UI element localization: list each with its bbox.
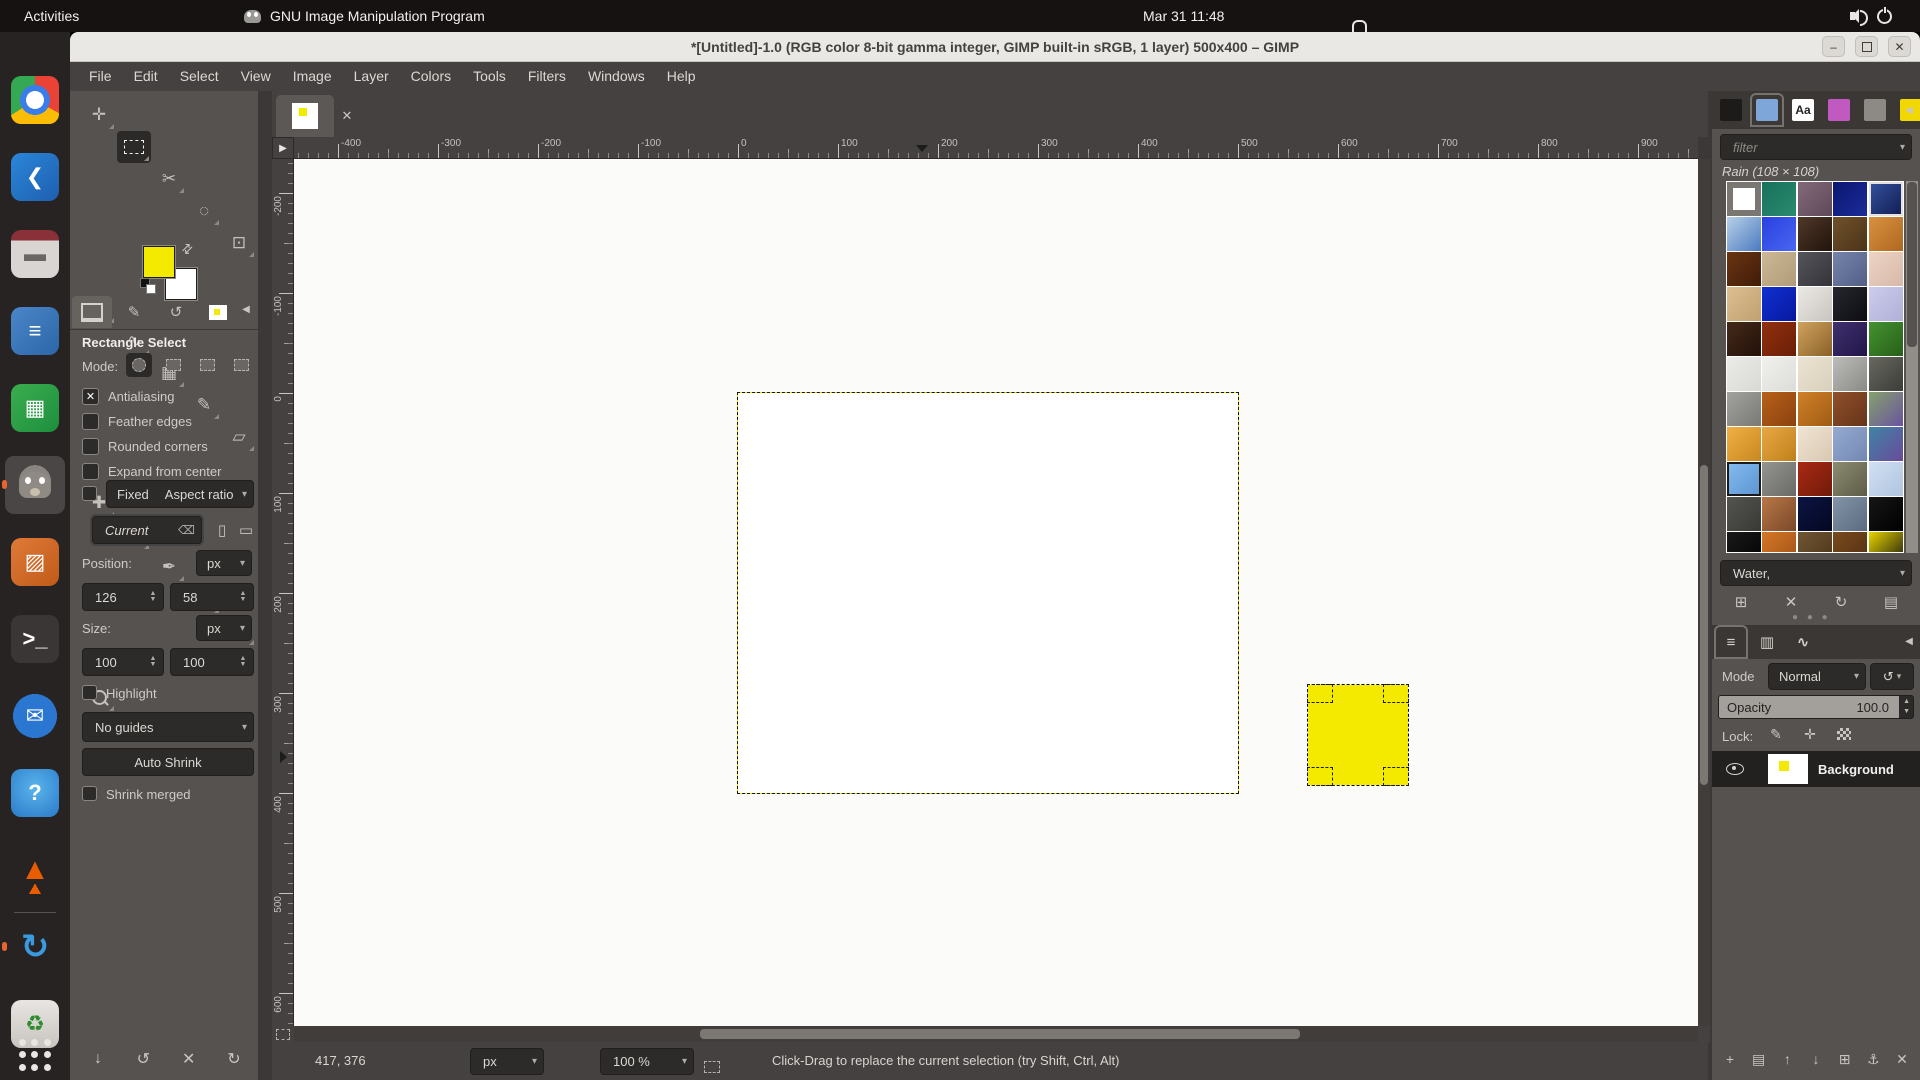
vertical-scrollbar-thumb[interactable]: [1700, 465, 1708, 785]
vertical-ruler[interactable]: -200-1000100200300400500600: [272, 159, 294, 1026]
toolbox-tab-tool-options[interactable]: [72, 296, 112, 328]
dock-item-terminal[interactable]: >_: [11, 615, 59, 663]
fixed-size-input[interactable]: Current ⌫: [92, 516, 202, 544]
window-controls: –✕: [1822, 32, 1920, 62]
delete-tool-preset-button[interactable]: ✕: [177, 1048, 201, 1070]
lower-layer-button[interactable]: ↓: [1804, 1048, 1828, 1070]
navigation-preview-button[interactable]: [1698, 1026, 1710, 1042]
option-row-feather-edges: Feather edges: [82, 410, 252, 432]
selection-handle-ne[interactable]: [1383, 684, 1409, 703]
ruler-corner-menu-icon[interactable]: ▶: [272, 137, 294, 159]
default-colors-icon-bg: [146, 284, 156, 294]
dock-item-chrome[interactable]: [11, 76, 59, 124]
layers-tab-layers[interactable]: ≡: [1716, 627, 1746, 657]
pointer-position: 417, 376: [315, 1053, 366, 1068]
restore-tool-preset-button[interactable]: ↺: [131, 1048, 155, 1070]
refresh-patterns-button[interactable]: ↻: [1828, 591, 1854, 613]
pattern-swatch[interactable]: [1762, 392, 1796, 426]
pattern-swatch[interactable]: [1869, 217, 1903, 251]
ruler-tick: [279, 693, 293, 694]
fixed-dropdown[interactable]: Fixed Aspect ratio ▾: [106, 480, 254, 508]
highlight-checkbox[interactable]: [82, 685, 97, 700]
menu-file[interactable]: File: [78, 62, 123, 91]
guides-dropdown[interactable]: No guides▾: [82, 712, 254, 742]
pattern-swatch[interactable]: [1833, 322, 1867, 356]
lock-alpha-button[interactable]: [1832, 723, 1856, 745]
ruler-tick: [338, 144, 339, 158]
gimp-toolbox-panel: ✛✂◌⊡↻∿▦✎▱✚◗✒A⌖ ⇄ ✎↺ ◀ Rectangle Select M…: [70, 91, 258, 1080]
dock-item-files[interactable]: ▬: [11, 230, 59, 278]
ruler-tick-label: -200: [273, 196, 284, 216]
ruler-tick-label: 800: [1541, 138, 1558, 149]
selected-pattern-label: Rain (108 × 108): [1722, 164, 1819, 179]
menu-view[interactable]: View: [230, 62, 282, 91]
pattern-swatch[interactable]: [1869, 462, 1903, 496]
ruler-tick-label: 200: [941, 138, 958, 149]
pattern-tag-dropdown[interactable]: Water,▾: [1720, 560, 1912, 586]
ruler-tick: [1538, 144, 1539, 158]
status-message: Click-Drag to replace the current select…: [772, 1053, 1120, 1068]
right-dock: Aa ◀ filter▾ Rain (108 × 108) Water,▾ ⊞✕…: [1712, 91, 1920, 1080]
ruler-tick-label: 400: [1141, 138, 1158, 149]
close-image-tab-icon[interactable]: ✕: [336, 105, 358, 127]
shrink-merged-label: Shrink merged: [106, 787, 191, 802]
pattern-swatch[interactable]: [1869, 497, 1903, 531]
window-title: *[Untitled]-1.0 (RGB color 8-bit gamma i…: [70, 32, 1920, 62]
pattern-swatch[interactable]: [1727, 252, 1761, 286]
gimp-menubar: FileEditSelectViewImageLayerColorsToolsF…: [70, 62, 1920, 91]
pattern-swatch[interactable]: [1833, 427, 1867, 461]
selection-handle-se[interactable]: [1383, 767, 1409, 786]
ruler-tick: [1438, 144, 1439, 158]
pattern-swatch[interactable]: [1798, 322, 1832, 356]
ruler-tick-label: 500: [1241, 138, 1258, 149]
dock-tab-brushes[interactable]: [1716, 95, 1746, 125]
ruler-tick: [838, 144, 839, 158]
ruler-tick: [438, 144, 439, 158]
save-tool-preset-button[interactable]: ↓: [86, 1048, 110, 1070]
ruler-tick: [1138, 144, 1139, 158]
running-indicator: [2, 942, 7, 951]
pattern-swatch[interactable]: [1727, 182, 1761, 216]
new-layer-group-button[interactable]: ▤: [1747, 1048, 1771, 1070]
new-layer-button[interactable]: +: [1718, 1048, 1742, 1070]
ruler-tick-label: -200: [541, 138, 561, 149]
ruler-tick-label: 100: [273, 496, 284, 513]
mode-label: Mode:: [82, 359, 118, 374]
pattern-swatch[interactable]: [1727, 462, 1761, 496]
vertical-scrollbar[interactable]: [1698, 159, 1710, 1026]
ruler-tick-label: -100: [273, 296, 284, 316]
pattern-swatch[interactable]: [1869, 357, 1903, 391]
pattern-swatch[interactable]: [1798, 427, 1832, 461]
pattern-swatch[interactable]: [1762, 532, 1796, 553]
highlight-label: Highlight: [106, 686, 157, 701]
tool-crop[interactable]: ⊡: [222, 227, 256, 259]
system-status-area[interactable]: [1850, 0, 1892, 32]
pattern-swatch[interactable]: [1869, 532, 1903, 553]
ruler-tick-label: 500: [273, 896, 284, 913]
opacity-spinner-icons[interactable]: ▲▼: [1903, 697, 1910, 717]
lock-pixels-button[interactable]: ✎: [1764, 723, 1788, 745]
pattern-filter-input[interactable]: filter▾: [1720, 134, 1912, 160]
layer-mode-reset-button[interactable]: ↺▾: [1870, 663, 1914, 690]
lock-label: Lock:: [1722, 729, 1753, 744]
landscape-orientation-icon[interactable]: ▭: [236, 520, 256, 540]
chevron-down-icon: ▾: [242, 489, 253, 500]
shrink-merged-checkbox[interactable]: [82, 786, 97, 801]
rounded-corners-label: Rounded corners: [108, 439, 208, 454]
dock-item-thunderbird[interactable]: ✉: [11, 692, 59, 740]
tool-move[interactable]: ✛: [82, 99, 116, 131]
ruler-tick-label: 600: [1341, 138, 1358, 149]
pattern-swatch[interactable]: [1798, 497, 1832, 531]
layers-collapse-icon[interactable]: ◀: [1902, 632, 1916, 650]
ruler-tick-label: 100: [841, 138, 858, 149]
pattern-swatch[interactable]: [1798, 182, 1832, 216]
ruler-tick: [279, 493, 293, 494]
position-x-spinner[interactable]: 126▲▼: [82, 583, 164, 611]
tool-options-title: Rectangle Select: [82, 335, 186, 350]
show-applications-button[interactable]: [14, 1034, 56, 1076]
volume-icon: [1850, 12, 1855, 20]
dock-tab-palettes[interactable]: [1860, 95, 1890, 125]
ruler-tick: [938, 144, 939, 158]
expand-from-center-checkbox[interactable]: [82, 463, 99, 480]
pattern-swatch[interactable]: [1762, 322, 1796, 356]
pattern-swatch[interactable]: [1798, 252, 1832, 286]
dock-item-libreoffice-calc[interactable]: ▦: [11, 384, 59, 432]
pattern-swatch[interactable]: [1762, 497, 1796, 531]
opacity-value: 100.0: [1856, 700, 1889, 715]
auto-shrink-button[interactable]: Auto Shrink: [82, 748, 254, 776]
ruler-tick-label: -400: [341, 138, 361, 149]
clock[interactable]: Mar 31 11:48: [1143, 0, 1224, 32]
pattern-swatch[interactable]: [1869, 182, 1903, 216]
statusbar: 417, 376 px▾ 100 %▾ Click-Drag to replac…: [272, 1042, 1708, 1080]
ruler-tick: [279, 993, 293, 994]
pattern-swatch[interactable]: [1727, 322, 1761, 356]
ruler-tick: [279, 393, 293, 394]
size-height-spinner[interactable]: 100▲▼: [170, 648, 254, 676]
pattern-swatch[interactable]: [1833, 287, 1867, 321]
dock-item-libreoffice-impress[interactable]: ▨: [11, 538, 59, 586]
pattern-swatch[interactable]: [1833, 392, 1867, 426]
option-row-antialiasing: ✕Antialiasing: [82, 385, 252, 407]
dock-collapse-icon[interactable]: ◀: [1902, 101, 1916, 119]
maximize-button[interactable]: [1855, 36, 1878, 57]
lock-position-button[interactable]: ✛: [1798, 723, 1822, 745]
ubuntu-dock: ❮▬≡▦▨>_✉?▲↻♻: [0, 32, 70, 1080]
ruler-tick-label: 600: [273, 996, 284, 1013]
opacity-label: Opacity: [1727, 700, 1771, 715]
image-canvas[interactable]: [738, 393, 1238, 793]
ruler-tick: [1038, 144, 1039, 158]
pattern-swatch[interactable]: [1727, 497, 1761, 531]
size-label: Size:: [82, 621, 111, 636]
expand-from-center-label: Expand from center: [108, 464, 221, 479]
foreground-color-swatch[interactable]: [143, 246, 175, 278]
layer-mode-dropdown[interactable]: Normal▾: [1768, 663, 1866, 690]
open-pattern-as-image-button[interactable]: ▤: [1878, 591, 1904, 613]
raise-layer-button[interactable]: ↑: [1775, 1048, 1799, 1070]
dock-item-software-updater[interactable]: ↻: [11, 923, 59, 971]
fixed-checkbox[interactable]: [82, 486, 97, 501]
pattern-swatch[interactable]: [1727, 217, 1761, 251]
dock-separator: [14, 912, 56, 913]
activities-button[interactable]: Activities: [24, 0, 79, 32]
select-mode-subtract[interactable]: [194, 353, 220, 377]
pattern-swatch[interactable]: [1869, 392, 1903, 426]
power-icon: [1877, 9, 1892, 24]
pattern-swatch[interactable]: [1762, 217, 1796, 251]
dock-item-gimp[interactable]: [11, 461, 59, 509]
ruler-tick: [279, 893, 293, 894]
pattern-swatch[interactable]: [1833, 532, 1867, 553]
ruler-tick-label: 300: [273, 696, 284, 713]
tool-rectangle-select[interactable]: [117, 131, 151, 163]
layer-visibility-icon[interactable]: [1726, 763, 1744, 775]
ruler-tick-label: 700: [1441, 138, 1458, 149]
canvas-viewport[interactable]: [294, 159, 1698, 1026]
ruler-tick-label: 0: [273, 396, 284, 402]
pointer-position-marker-v: [280, 751, 293, 763]
ruler-tick-label: 300: [1041, 138, 1058, 149]
selection-handle-nw[interactable]: [1307, 684, 1333, 703]
option-row-rounded-corners: Rounded corners: [82, 435, 252, 457]
patterns-grid[interactable]: [1726, 181, 1904, 553]
horizontal-ruler[interactable]: -400-300-200-100010020030040050060070080…: [294, 137, 1698, 159]
patterns-scrollbar[interactable]: [1906, 181, 1918, 553]
gnome-top-bar: Activities GNU Image Manipulation Progra…: [0, 0, 1920, 32]
anchor-layer-button[interactable]: ⚓: [1861, 1048, 1885, 1070]
ruler-tick-label: 200: [273, 596, 284, 613]
active-tool-status-icon: [704, 1061, 720, 1073]
quick-mask-toggle[interactable]: [272, 1026, 294, 1042]
delete-layer-button[interactable]: ✕: [1890, 1048, 1914, 1070]
opacity-slider[interactable]: Opacity 100.0 ▲▼: [1718, 695, 1914, 719]
ruler-tick: [279, 293, 293, 294]
dock-item-vscode[interactable]: ❮: [11, 153, 59, 201]
pattern-swatch[interactable]: [1798, 532, 1832, 553]
option-row-expand-from-center: Expand from center: [82, 460, 252, 482]
menu-filters[interactable]: Filters: [517, 62, 577, 91]
pattern-swatch[interactable]: [1762, 252, 1796, 286]
ruler-tick: [638, 144, 639, 158]
pattern-swatch[interactable]: [1833, 462, 1867, 496]
close-button[interactable]: ✕: [1888, 36, 1911, 57]
ruler-tick-label: 400: [273, 796, 284, 813]
layer-mode-label: Mode: [1722, 669, 1755, 684]
ruler-tick: [1338, 144, 1339, 158]
dock-item-help[interactable]: ?: [11, 769, 59, 817]
zoom-dropdown[interactable]: 100 %▾: [600, 1048, 694, 1075]
menu-layer[interactable]: Layer: [343, 62, 400, 91]
pattern-swatch[interactable]: [1727, 392, 1761, 426]
toolbox-tab-device-status[interactable]: ✎: [114, 296, 154, 328]
rectangle-selection[interactable]: [1308, 685, 1408, 785]
ruler-tick: [738, 144, 739, 158]
image-tab-strip: ✕: [272, 91, 1708, 137]
pattern-swatch[interactable]: [1727, 532, 1761, 553]
duplicate-layer-button[interactable]: ⊞: [1833, 1048, 1857, 1070]
pattern-swatch[interactable]: [1762, 427, 1796, 461]
layer-thumbnail[interactable]: [1768, 754, 1808, 784]
dock-tab-patterns[interactable]: [1752, 95, 1782, 125]
pattern-swatch[interactable]: [1833, 252, 1867, 286]
tool-airbrush[interactable]: ✒: [152, 551, 186, 583]
pattern-swatch[interactable]: [1798, 357, 1832, 391]
feather-edges-label: Feather edges: [108, 414, 192, 429]
horizontal-scrollbar-thumb[interactable]: [700, 1029, 1300, 1039]
gimp-titlebar[interactable]: *[Untitled]-1.0 (RGB color 8-bit gamma i…: [70, 32, 1920, 62]
focused-app-menu[interactable]: GNU Image Manipulation Program: [244, 0, 485, 32]
gimp-wilber-icon: [244, 10, 261, 23]
menu-help[interactable]: Help: [656, 62, 707, 91]
tool-scissors-select[interactable]: ✂: [152, 163, 186, 195]
antialiasing-label: Antialiasing: [108, 389, 175, 404]
running-indicator: [2, 480, 7, 489]
pointer-position-marker-h: [916, 145, 928, 158]
delete-pattern-button[interactable]: ✕: [1778, 591, 1804, 613]
antialiasing-checkbox[interactable]: ✕: [82, 388, 99, 405]
ruler-tick: [538, 144, 539, 158]
dock-tab-gradients[interactable]: [1824, 95, 1854, 125]
size-width-spinner[interactable]: 100▲▼: [82, 648, 164, 676]
ruler-tick-label: 900: [1641, 138, 1658, 149]
dock-item-vlc[interactable]: ▲: [11, 846, 59, 894]
position-y-spinner[interactable]: 58▲▼: [170, 583, 254, 611]
reset-tool-options-button[interactable]: ↻: [222, 1048, 246, 1070]
menu-tools[interactable]: Tools: [462, 62, 517, 91]
layers-tab-paths[interactable]: ∿: [1788, 627, 1818, 657]
menu-edit[interactable]: Edit: [123, 62, 169, 91]
ruler-tick: [279, 193, 293, 194]
pattern-swatch[interactable]: [1833, 357, 1867, 391]
ruler-tick-label: -100: [641, 138, 661, 149]
pattern-swatch[interactable]: [1762, 287, 1796, 321]
duplicate-pattern-button[interactable]: ⊞: [1728, 591, 1754, 613]
pattern-swatch[interactable]: [1762, 182, 1796, 216]
layers-tab-channels[interactable]: ▥: [1752, 627, 1782, 657]
menu-windows[interactable]: Windows: [577, 62, 656, 91]
minimize-button[interactable]: –: [1822, 36, 1845, 57]
pattern-swatch[interactable]: [1869, 427, 1903, 461]
dock-splitter-handle[interactable]: ● ● ●: [1792, 612, 1831, 623]
toolbox-tab-images[interactable]: [198, 296, 238, 328]
menu-select[interactable]: Select: [169, 62, 230, 91]
ruler-tick: [279, 593, 293, 594]
pattern-swatch[interactable]: [1798, 462, 1832, 496]
pattern-swatch[interactable]: [1798, 217, 1832, 251]
pattern-swatch[interactable]: [1833, 497, 1867, 531]
ruler-tick-label: -300: [441, 138, 461, 149]
tool-fuzzy-select[interactable]: ◌: [187, 195, 221, 227]
pattern-swatch[interactable]: [1833, 217, 1867, 251]
menu-image[interactable]: Image: [282, 62, 343, 91]
size-unit-dropdown[interactable]: px▾: [196, 615, 252, 641]
menu-colors[interactable]: Colors: [400, 62, 462, 91]
dock-tab-fonts[interactable]: Aa: [1788, 95, 1818, 125]
portrait-orientation-icon[interactable]: ▯: [212, 520, 232, 540]
pattern-swatch[interactable]: [1798, 392, 1832, 426]
pattern-swatch[interactable]: [1869, 287, 1903, 321]
pattern-swatch[interactable]: [1869, 322, 1903, 356]
layer-name[interactable]: Background: [1818, 762, 1894, 777]
toolbox-tab-undo-history[interactable]: ↺: [156, 296, 196, 328]
position-label: Position:: [82, 556, 132, 571]
ruler-tick-label: 0: [741, 138, 747, 149]
rounded-corners-checkbox[interactable]: [82, 438, 99, 455]
position-unit-dropdown[interactable]: px▾: [196, 550, 252, 576]
select-mode-add[interactable]: [160, 353, 186, 377]
pattern-swatch[interactable]: [1762, 462, 1796, 496]
panel-collapse-icon[interactable]: ◀: [238, 301, 254, 317]
pattern-swatch[interactable]: [1869, 252, 1903, 286]
dock-item-libreoffice-writer[interactable]: ≡: [11, 307, 59, 355]
ruler-tick: [1638, 144, 1639, 158]
image-tab[interactable]: [276, 95, 334, 137]
layer-row[interactable]: Background: [1712, 751, 1920, 787]
clear-input-icon: ⌫: [178, 523, 201, 537]
selection-handle-sw[interactable]: [1307, 767, 1333, 786]
unit-dropdown[interactable]: px▾: [470, 1048, 544, 1075]
select-mode-intersect[interactable]: [228, 353, 254, 377]
pattern-swatch[interactable]: [1727, 287, 1761, 321]
pattern-swatch[interactable]: [1727, 357, 1761, 391]
feather-edges-checkbox[interactable]: [82, 413, 99, 430]
ruler-tick: [1238, 144, 1239, 158]
ruler-tick: [279, 793, 293, 794]
select-mode-replace[interactable]: [126, 353, 152, 377]
pattern-swatch[interactable]: [1833, 182, 1867, 216]
pattern-swatch[interactable]: [1798, 287, 1832, 321]
horizontal-scrollbar[interactable]: [294, 1026, 1698, 1042]
pattern-swatch[interactable]: [1727, 427, 1761, 461]
pattern-swatch[interactable]: [1762, 357, 1796, 391]
